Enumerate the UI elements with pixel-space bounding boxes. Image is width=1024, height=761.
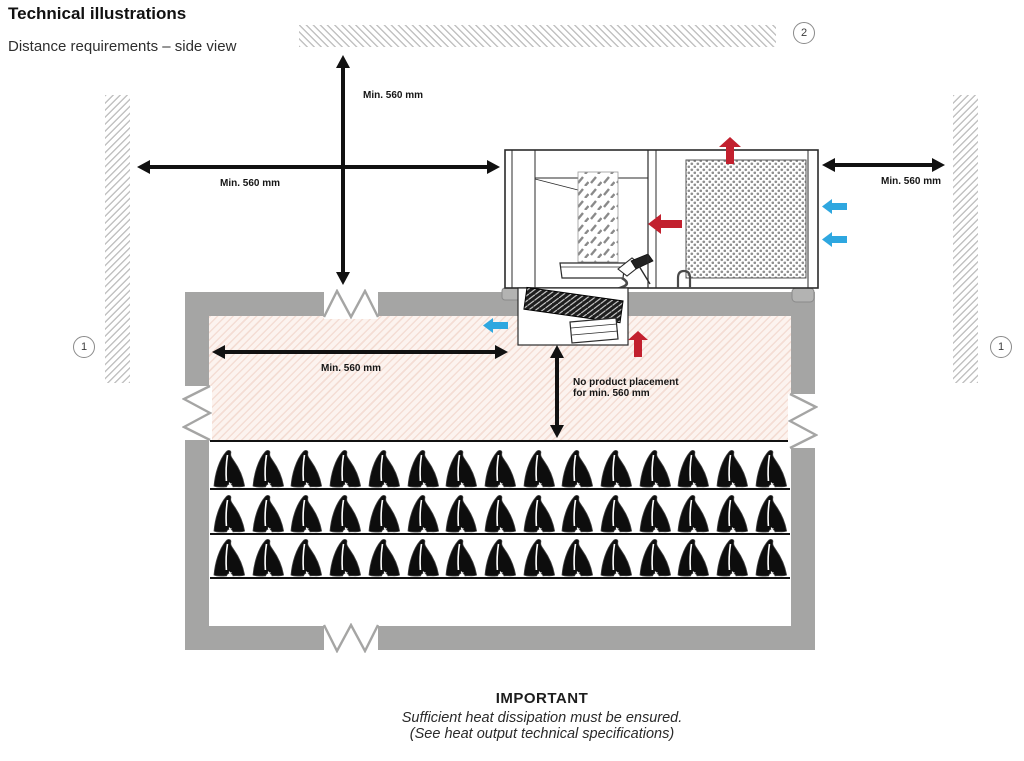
shelf-line [210,440,790,442]
ham-icon [482,493,518,533]
dim-label-no-product-zone: No product placement for min. 560 mm [573,377,679,399]
ham-icon [714,448,750,488]
dim-arrow-right-clearance [834,163,933,167]
ham-icon [675,537,711,577]
ham-icon [405,537,441,577]
ham-icon [753,448,789,488]
evaporator-coil [578,172,618,262]
ham-icon [559,448,595,488]
dim-label-ceiling-clearance: Min. 560 mm [363,90,423,101]
ham-icon [675,493,711,533]
hot-air-arrow-side [648,214,682,234]
right-wall-hatch [953,95,978,383]
cold-air-arrow-right-2 [822,232,847,247]
dim-label-left-clearance: Min. 560 mm [200,178,300,189]
ham-icon [753,493,789,533]
cold-air-arrow-right-1 [822,199,847,214]
ham-icon [637,448,673,488]
ham-icon [598,493,634,533]
drain-pan [560,263,625,278]
ham-icon [521,493,557,533]
ham-icon [443,493,479,533]
page-title: Technical illustrations [8,4,186,24]
callout-left-wall: 1 [73,336,95,358]
ham-icon [598,537,634,577]
ham-icon [250,493,286,533]
cooling-unit-illustration [498,138,828,368]
ham-icon [637,537,673,577]
dim-label-front-clearance: Min. 560 mm [301,363,401,374]
dim-arrow-left-clearance [149,165,488,169]
product-shelf-row [211,493,789,533]
ham-icon [366,448,402,488]
ham-icon [559,493,595,533]
ham-icon [288,448,324,488]
ham-icon [211,493,247,533]
ham-icon [211,537,247,577]
technical-illustration-page: Technical illustrations Distance require… [0,0,1024,761]
ham-icon [405,493,441,533]
ham-icon [637,493,673,533]
room-left-wall [185,292,209,650]
ham-icon [714,537,750,577]
ham-icon [521,537,557,577]
ham-icon [714,493,750,533]
ham-icon [288,537,324,577]
dim-label-right-clearance: Min. 560 mm [866,176,956,187]
shelf-line [210,577,790,579]
left-wall-break-icon [182,384,212,442]
cold-air-arrow-interior [483,318,508,333]
room-floor [185,626,815,650]
important-line2: (See heat output technical specification… [262,726,822,742]
shelf-line [210,533,790,535]
ham-icon [559,537,595,577]
ham-icon [250,537,286,577]
right-wall-break-icon [788,392,818,450]
important-line1: Sufficient heat dissipation must be ensu… [262,710,822,726]
unit-foot [502,288,520,300]
ham-icon [288,493,324,533]
product-shelf-row [211,448,789,488]
ham-icon [753,537,789,577]
condenser-grille [686,160,806,278]
hot-air-arrow-interior [628,331,648,357]
unit-foot [792,288,814,302]
ham-icon [366,537,402,577]
important-note: IMPORTANT Sufficient heat dissipation mu… [262,690,822,742]
roof-break-icon [322,289,380,319]
callout-right-wall: 1 [990,336,1012,358]
ceiling-hatch [299,25,776,47]
ham-icon [327,493,363,533]
shelf-line [210,488,790,490]
ham-icon [675,448,711,488]
ham-icon [327,448,363,488]
important-heading: IMPORTANT [262,690,822,707]
ham-icon [443,537,479,577]
ham-icon [327,537,363,577]
ham-icon [366,493,402,533]
page-subtitle: Distance requirements – side view [8,38,236,55]
floor-break-icon [322,623,380,653]
ham-icon [443,448,479,488]
callout-ceiling: 2 [793,22,815,44]
dim-arrow-ceiling-clearance [341,67,345,273]
ham-icon [482,448,518,488]
ham-icon [521,448,557,488]
dim-arrow-front-clearance [224,350,496,354]
ham-icon [250,448,286,488]
ham-icon [482,537,518,577]
hot-air-arrow-up [719,137,741,164]
ham-icon [211,448,247,488]
dim-arrow-no-product-zone [555,357,559,426]
ham-icon [405,448,441,488]
product-shelf-row [211,537,789,577]
ham-icon [598,448,634,488]
condensate-tray [570,318,618,343]
left-wall-hatch [105,95,130,383]
